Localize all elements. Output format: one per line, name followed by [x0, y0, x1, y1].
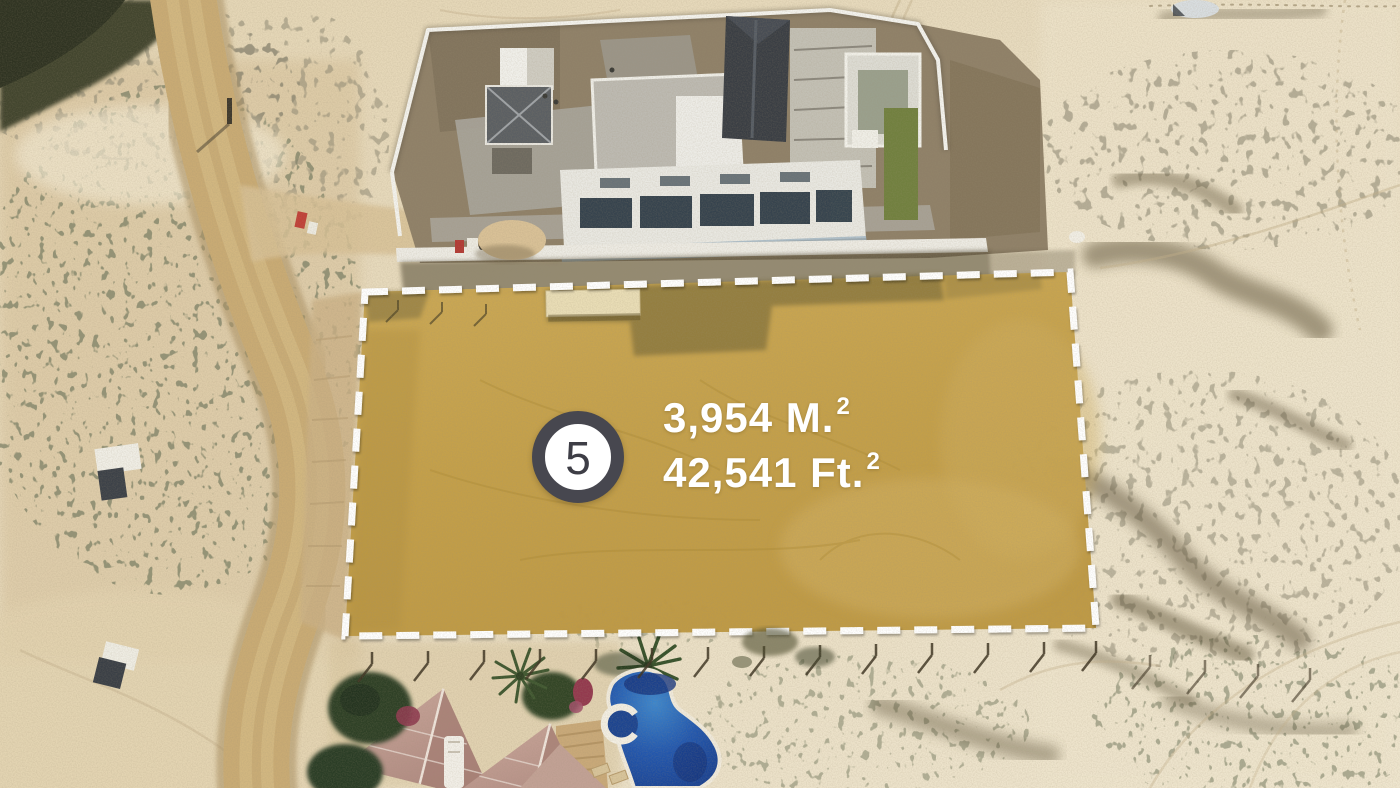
area-imperial-sup: 2 — [866, 448, 880, 475]
lot-number-badge[interactable]: 5 — [532, 411, 624, 503]
lot-number: 5 — [565, 435, 591, 481]
area-metric-value: 3,954 M. — [663, 394, 834, 441]
area-metric-sup: 2 — [836, 393, 850, 420]
lot-area-labels: 3,954 M.2 42,541 Ft.2 — [663, 390, 881, 500]
area-imperial-value: 42,541 Ft. — [663, 449, 864, 496]
area-metric: 3,954 M.2 — [663, 390, 881, 445]
lot-aerial-view: 5 3,954 M.2 42,541 Ft.2 — [0, 0, 1400, 788]
area-imperial: 42,541 Ft.2 — [663, 445, 881, 500]
